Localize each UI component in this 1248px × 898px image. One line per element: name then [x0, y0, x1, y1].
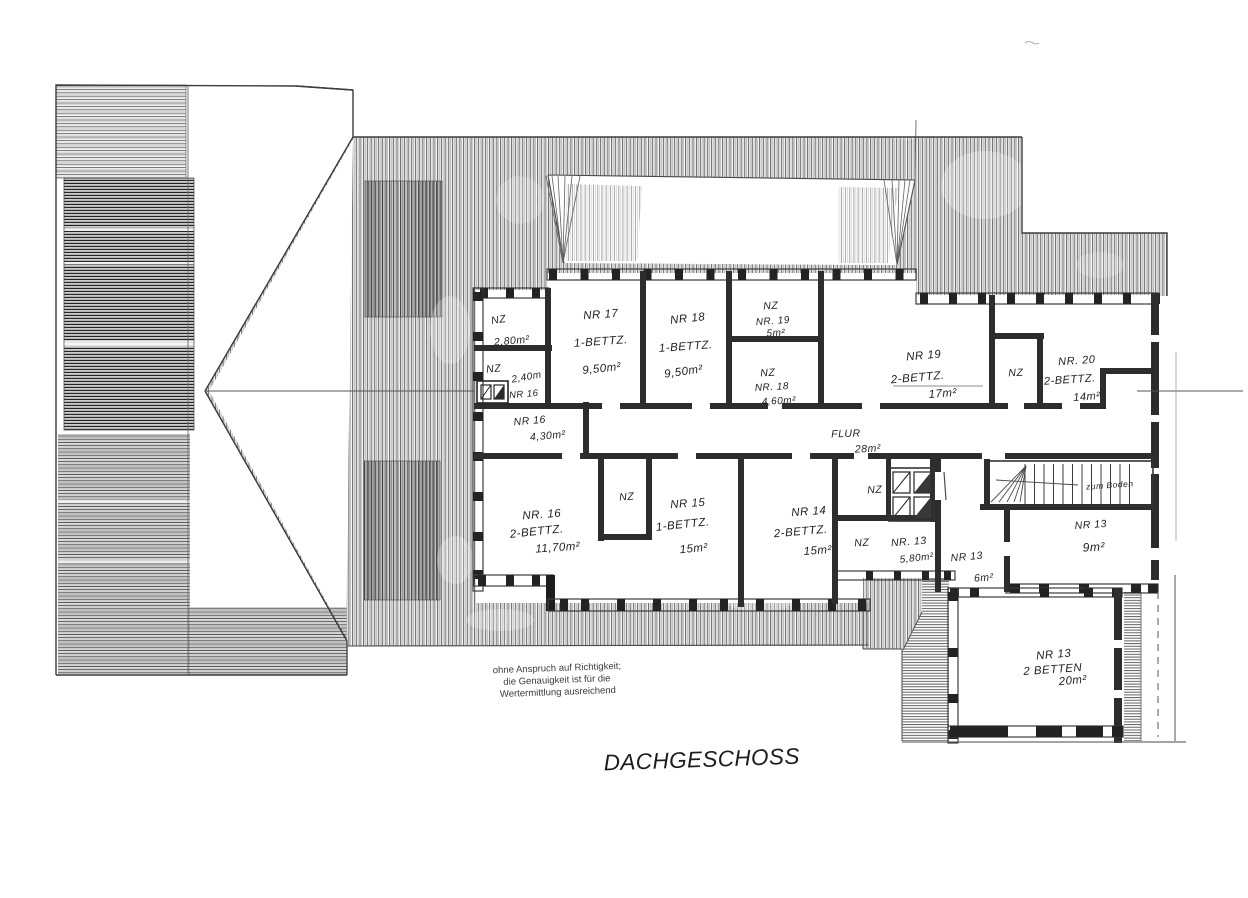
svg-text:NR. 13: NR. 13 — [891, 535, 927, 549]
svg-text:15m²: 15m² — [803, 544, 833, 558]
svg-text:NR 13: NR 13 — [1074, 518, 1107, 532]
svg-text:4,60m²: 4,60m² — [762, 395, 797, 408]
svg-text:17m²: 17m² — [928, 387, 958, 401]
svg-text:5m²: 5m² — [766, 328, 785, 340]
svg-text:6m²: 6m² — [974, 571, 994, 584]
svg-text:NZ: NZ — [760, 366, 776, 379]
svg-text:NZ: NZ — [763, 299, 779, 312]
svg-text:NZ: NZ — [1008, 367, 1024, 380]
svg-text:NR 17: NR 17 — [583, 308, 619, 322]
svg-text:NZ: NZ — [490, 313, 507, 327]
svg-text:NR 15: NR 15 — [670, 497, 706, 511]
svg-text:28m²: 28m² — [854, 442, 882, 455]
svg-text:NR 14: NR 14 — [791, 505, 827, 519]
svg-text:NZ: NZ — [619, 490, 635, 503]
svg-text:FLUR: FLUR — [831, 427, 861, 440]
svg-text:9m²: 9m² — [1082, 539, 1105, 554]
svg-text:NR. 18: NR. 18 — [755, 381, 790, 394]
svg-text:NZ: NZ — [486, 362, 502, 376]
svg-text:NZ: NZ — [854, 536, 870, 549]
svg-text:15m²: 15m² — [679, 542, 709, 556]
svg-text:NZ: NZ — [867, 483, 883, 496]
svg-text:14m²: 14m² — [1073, 390, 1101, 404]
